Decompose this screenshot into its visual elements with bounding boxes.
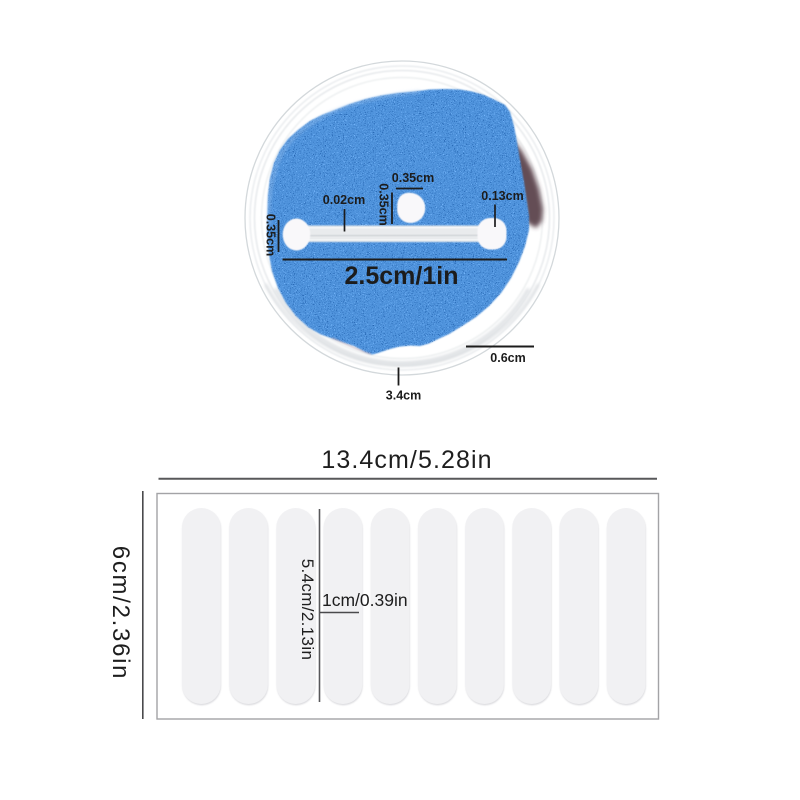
svg-text:3.4cm: 3.4cm bbox=[386, 389, 421, 403]
svg-text:13.4cm/5.28in: 13.4cm/5.28in bbox=[321, 446, 492, 474]
svg-text:0.35cm: 0.35cm bbox=[392, 171, 434, 185]
svg-text:0.02cm: 0.02cm bbox=[323, 193, 365, 207]
svg-text:0.6cm: 0.6cm bbox=[490, 351, 525, 365]
svg-text:0.13cm: 0.13cm bbox=[481, 189, 523, 203]
svg-text:1cm/0.39in: 1cm/0.39in bbox=[322, 590, 408, 610]
svg-text:0.35cm: 0.35cm bbox=[264, 214, 278, 256]
svg-text:5.4cm/2.13in: 5.4cm/2.13in bbox=[298, 559, 317, 661]
svg-text:2.5cm/1in: 2.5cm/1in bbox=[345, 262, 459, 290]
svg-text:0.35cm: 0.35cm bbox=[377, 183, 391, 225]
svg-text:6cm/2.36in: 6cm/2.36in bbox=[107, 546, 134, 680]
